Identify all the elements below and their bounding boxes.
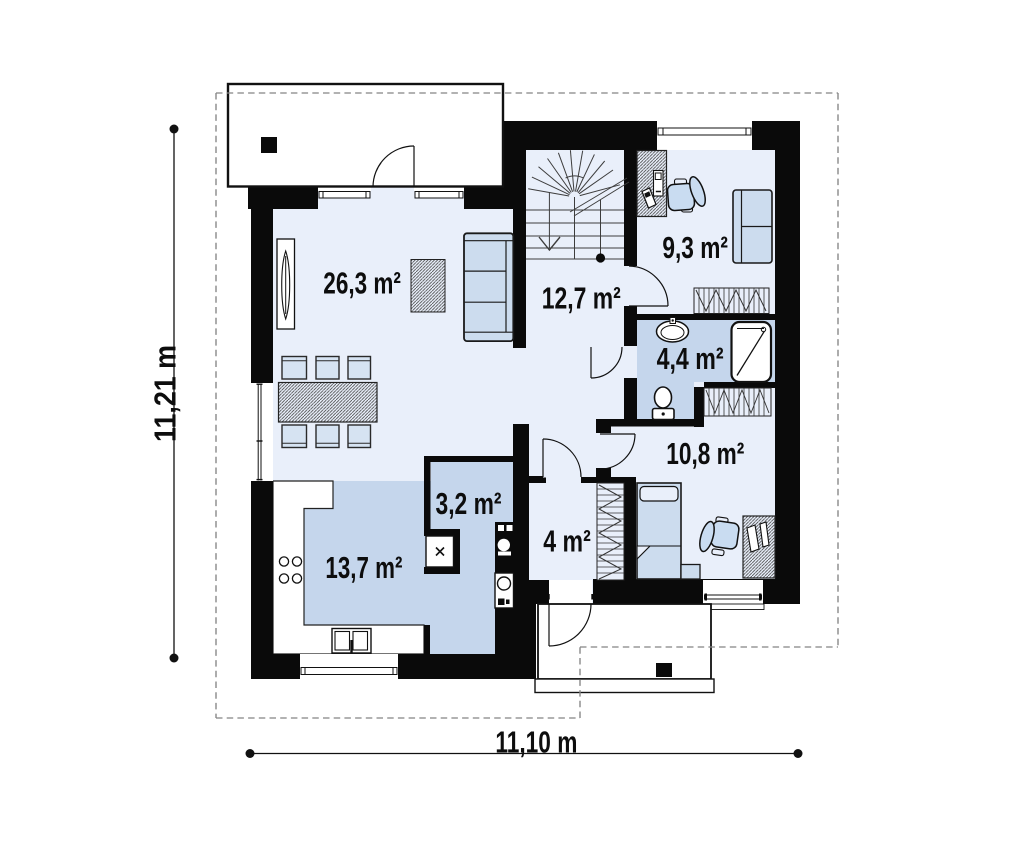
svg-text:26,3 m²: 26,3 m² bbox=[323, 267, 401, 301]
svg-text:3,2 m²: 3,2 m² bbox=[436, 487, 502, 521]
svg-text:10,8 m²: 10,8 m² bbox=[666, 437, 744, 471]
svg-text:12,7 m²: 12,7 m² bbox=[542, 281, 621, 315]
svg-text:4 m²: 4 m² bbox=[543, 525, 591, 559]
svg-text:13,7 m²: 13,7 m² bbox=[325, 551, 402, 585]
svg-text:11,21 m: 11,21 m bbox=[149, 345, 183, 442]
svg-text:9,3 m²: 9,3 m² bbox=[662, 231, 728, 265]
svg-text:11,10 m: 11,10 m bbox=[495, 725, 577, 759]
svg-text:4,4 m²: 4,4 m² bbox=[657, 342, 724, 376]
